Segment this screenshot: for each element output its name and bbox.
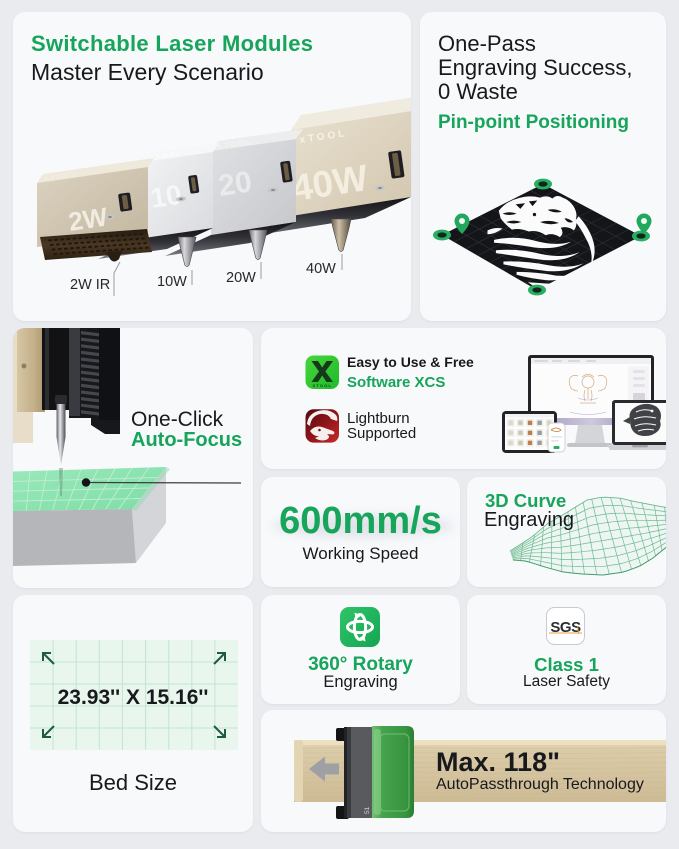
svg-text:10W: 10W: [157, 274, 187, 290]
svg-text:XTOOL: XTOOL: [312, 383, 332, 388]
svg-text:SGS: SGS: [550, 619, 581, 636]
svg-text:40W: 40W: [306, 261, 336, 277]
svg-text:10: 10: [148, 179, 183, 214]
svg-text:51: 51: [364, 806, 371, 814]
svg-text:20: 20: [216, 165, 254, 203]
svg-text:2W IR: 2W IR: [70, 277, 110, 293]
svg-text:2W: 2W: [66, 201, 109, 237]
svg-text:20W: 20W: [226, 270, 256, 286]
